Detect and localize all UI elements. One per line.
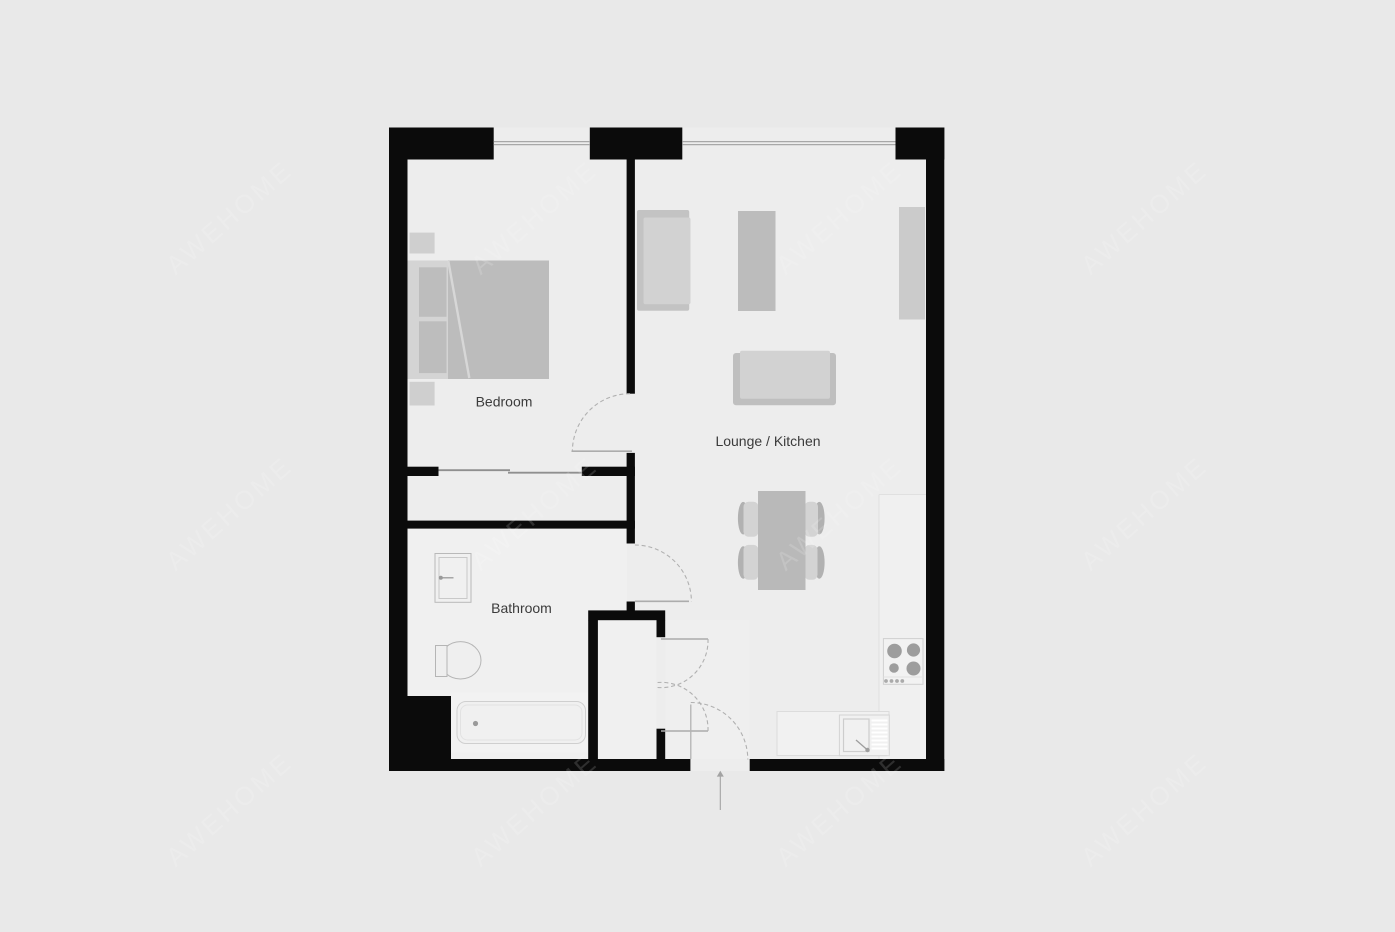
svg-text:Bathroom: Bathroom <box>491 600 552 616</box>
svg-text:Bedroom: Bedroom <box>476 393 533 409</box>
svg-text:Lounge / Kitchen: Lounge / Kitchen <box>715 433 820 449</box>
